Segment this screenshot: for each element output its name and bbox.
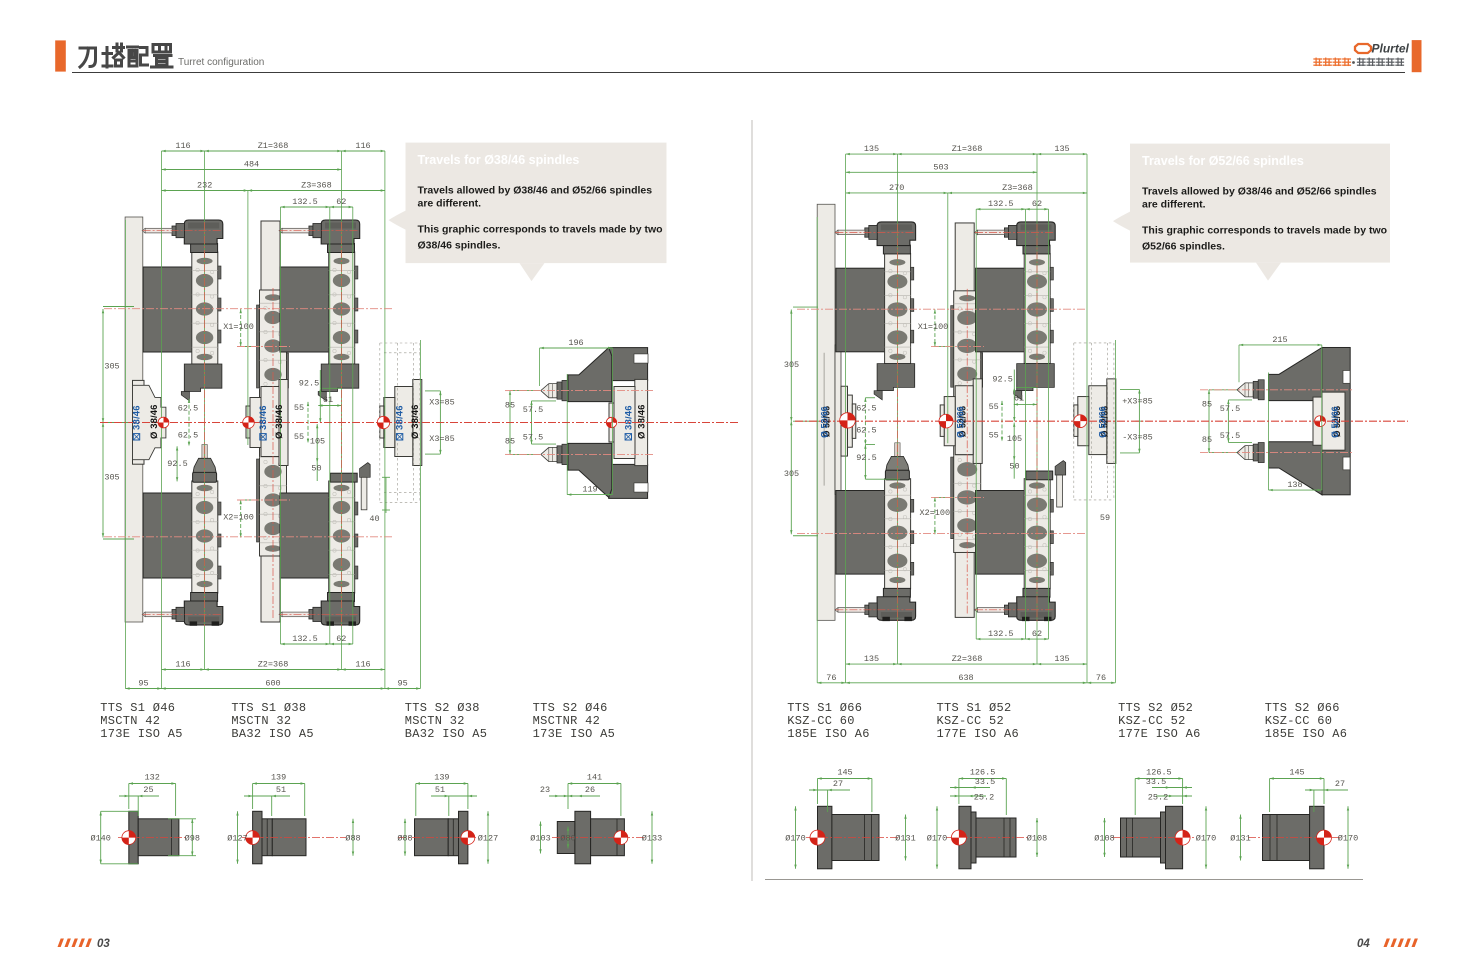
- svg-text:50: 50: [1009, 461, 1019, 471]
- svg-text:173E ISO A5: 173E ISO A5: [533, 727, 616, 741]
- svg-text:are different.: are different.: [418, 198, 482, 210]
- svg-text:173E ISO A5: 173E ISO A5: [100, 727, 183, 741]
- svg-text:TTS S1 Ø38: TTS S1 Ø38: [231, 701, 306, 715]
- svg-text:105: 105: [1007, 434, 1022, 444]
- svg-text:Ø131: Ø131: [1230, 833, 1250, 843]
- svg-text:TTS S2 Ø46: TTS S2 Ø46: [533, 701, 608, 715]
- svg-text:305: 305: [104, 362, 119, 372]
- svg-text:+X3=85: +X3=85: [1122, 397, 1153, 407]
- svg-text:Ø88: Ø88: [397, 833, 412, 843]
- svg-text:are different.: are different.: [1142, 199, 1206, 211]
- svg-text:51: 51: [435, 785, 445, 795]
- svg-text:Travels for Ø38/46 spindles: Travels for Ø38/46 spindles: [418, 153, 580, 167]
- svg-text:85: 85: [1202, 399, 1212, 409]
- svg-text:138: 138: [1287, 480, 1302, 490]
- svg-text:305: 305: [104, 473, 119, 483]
- svg-text:215: 215: [1272, 335, 1287, 345]
- svg-text:62.5: 62.5: [178, 404, 198, 414]
- svg-text:X3=85: X3=85: [429, 398, 455, 408]
- svg-text:Ø88: Ø88: [345, 833, 360, 843]
- svg-text:92.5: 92.5: [856, 453, 876, 463]
- svg-text:X3=85: X3=85: [429, 434, 455, 444]
- svg-text:MSCTN 32: MSCTN 32: [231, 714, 291, 728]
- svg-text:BA32 ISO A5: BA32 ISO A5: [231, 727, 314, 741]
- svg-text:135: 135: [1054, 144, 1069, 154]
- svg-text:Ø 38/46: Ø 38/46: [636, 404, 647, 439]
- svg-text:26: 26: [585, 785, 595, 795]
- svg-text:51: 51: [276, 785, 286, 795]
- svg-text:270: 270: [889, 183, 904, 193]
- svg-text:38/46: 38/46: [258, 405, 269, 430]
- svg-text:92.5: 92.5: [299, 379, 319, 389]
- svg-text:Z2=368: Z2=368: [258, 660, 289, 670]
- svg-text:503: 503: [933, 162, 948, 172]
- svg-text:50: 50: [311, 464, 321, 474]
- svg-text:X1=100: X1=100: [223, 322, 254, 332]
- svg-text:Z1=368: Z1=368: [258, 141, 289, 151]
- svg-text:55: 55: [989, 430, 999, 440]
- svg-text:Ø170: Ø170: [785, 833, 805, 843]
- svg-text:135: 135: [864, 654, 879, 664]
- svg-text:55: 55: [294, 432, 304, 442]
- svg-text:177E ISO A6: 177E ISO A6: [937, 727, 1020, 741]
- svg-text:Z1=368: Z1=368: [952, 144, 983, 154]
- svg-text:This graphic corresponds to tr: This graphic corresponds to travels made…: [418, 224, 663, 236]
- svg-text:KSZ-CC 60: KSZ-CC 60: [787, 714, 855, 728]
- svg-text:Z3=368: Z3=368: [301, 181, 332, 191]
- svg-text:92.5: 92.5: [992, 374, 1012, 384]
- svg-text:25: 25: [143, 785, 153, 795]
- svg-text:Ø52/66 spindles.: Ø52/66 spindles.: [1142, 241, 1225, 253]
- svg-text:Plurtel: Plurtel: [1372, 42, 1410, 56]
- svg-text:Ø131: Ø131: [895, 833, 915, 843]
- svg-text:25.2: 25.2: [974, 793, 994, 803]
- svg-text:Ø 38/46: Ø 38/46: [149, 404, 160, 439]
- svg-text:177E ISO A6: 177E ISO A6: [1118, 727, 1201, 741]
- svg-text:61: 61: [323, 395, 333, 405]
- svg-text:Ø108: Ø108: [1094, 833, 1114, 843]
- svg-text:600: 600: [265, 679, 280, 689]
- svg-text:55: 55: [294, 403, 304, 413]
- svg-text:MSCTN 42: MSCTN 42: [100, 714, 160, 728]
- svg-text:57.5: 57.5: [523, 405, 543, 415]
- svg-text:X2=100: X2=100: [920, 508, 951, 518]
- svg-text:33.5: 33.5: [1146, 777, 1166, 787]
- svg-text:92.5: 92.5: [167, 459, 187, 469]
- svg-text:38/46: 38/46: [395, 405, 406, 430]
- svg-text:132.5: 132.5: [988, 629, 1013, 639]
- svg-text:38/46: 38/46: [132, 405, 143, 430]
- svg-text:X1=100: X1=100: [918, 322, 949, 332]
- svg-text:116: 116: [355, 141, 370, 151]
- svg-text:76: 76: [826, 673, 836, 683]
- svg-text:MSCTNR 42: MSCTNR 42: [533, 714, 601, 728]
- svg-text:Ø 38/46: Ø 38/46: [410, 404, 421, 439]
- svg-text:638: 638: [958, 673, 973, 683]
- svg-text:40: 40: [369, 514, 379, 524]
- svg-text:139: 139: [434, 773, 449, 783]
- svg-text:This graphic corresponds to tr: This graphic corresponds to travels made…: [1142, 225, 1387, 237]
- svg-text:KSZ-CC 52: KSZ-CC 52: [1118, 714, 1186, 728]
- svg-text:85: 85: [1202, 435, 1212, 445]
- svg-text:62: 62: [1032, 199, 1042, 209]
- svg-text:135: 135: [1054, 654, 1069, 664]
- svg-text:Ø 52/66: Ø 52/66: [955, 406, 965, 437]
- svg-text:TTS S2 Ø52: TTS S2 Ø52: [1118, 701, 1193, 715]
- svg-text:23: 23: [540, 785, 550, 795]
- svg-text:TTS S1 Ø52: TTS S1 Ø52: [937, 701, 1012, 715]
- svg-text:04: 04: [1357, 938, 1370, 950]
- svg-text:X2=100: X2=100: [223, 513, 254, 523]
- svg-text:57.5: 57.5: [1220, 404, 1240, 414]
- svg-text:57.5: 57.5: [523, 433, 543, 443]
- svg-text:Ø 52/66: Ø 52/66: [1097, 406, 1107, 437]
- svg-text:119: 119: [582, 485, 597, 495]
- svg-text:62.5: 62.5: [178, 431, 198, 441]
- svg-text:Turret configuration: Turret configuration: [178, 57, 264, 68]
- svg-text:Travels allowed by Ø38/46 and: Travels allowed by Ø38/46 and Ø52/66 spi…: [418, 185, 653, 197]
- svg-text:KSZ-CC 60: KSZ-CC 60: [1265, 714, 1333, 728]
- svg-text:Travels allowed by Ø38/46 and: Travels allowed by Ø38/46 and Ø52/66 spi…: [1142, 186, 1377, 198]
- svg-text:484: 484: [244, 160, 259, 170]
- svg-text:BA32 ISO A5: BA32 ISO A5: [405, 727, 488, 741]
- svg-text:85: 85: [505, 401, 515, 411]
- svg-text:132: 132: [145, 773, 160, 783]
- svg-text:62: 62: [336, 634, 346, 644]
- svg-text:85: 85: [505, 437, 515, 447]
- svg-text:305: 305: [784, 360, 799, 370]
- svg-text:305: 305: [784, 469, 799, 479]
- svg-text:76: 76: [1096, 673, 1106, 683]
- svg-text:Ø140: Ø140: [90, 833, 110, 843]
- svg-text:Z2=368: Z2=368: [952, 654, 983, 664]
- svg-text:139: 139: [271, 773, 286, 783]
- svg-text:Ø108: Ø108: [1027, 833, 1047, 843]
- svg-text:145: 145: [837, 768, 852, 778]
- svg-text:132.5: 132.5: [988, 199, 1013, 209]
- svg-text:Ø 52/66: Ø 52/66: [819, 406, 829, 437]
- svg-text:95: 95: [397, 679, 407, 689]
- svg-text:62.5: 62.5: [856, 403, 876, 413]
- svg-text:135: 135: [864, 144, 879, 154]
- svg-text:Ø 38/46: Ø 38/46: [274, 404, 285, 439]
- svg-text:Ø133: Ø133: [642, 833, 662, 843]
- svg-text:33.5: 33.5: [975, 777, 995, 787]
- svg-text:185E ISO A6: 185E ISO A6: [1265, 727, 1348, 741]
- svg-text:145: 145: [1289, 768, 1304, 778]
- svg-text:62: 62: [336, 197, 346, 207]
- svg-text:55: 55: [989, 402, 999, 412]
- svg-text:Ø98: Ø98: [185, 833, 200, 843]
- svg-text:TTS S1 Ø66: TTS S1 Ø66: [787, 701, 862, 715]
- svg-text:126.5: 126.5: [970, 768, 996, 778]
- svg-text:Ø103: Ø103: [530, 833, 550, 843]
- svg-text:132.5: 132.5: [292, 634, 318, 644]
- svg-text:27: 27: [1335, 779, 1345, 789]
- svg-text:Ø 52/66: Ø 52/66: [1330, 406, 1340, 437]
- svg-text:126.5: 126.5: [1146, 768, 1172, 778]
- svg-text:Ø80: Ø80: [560, 833, 575, 843]
- svg-text:-X3=85: -X3=85: [1122, 432, 1153, 442]
- svg-text:TTS S2 Ø38: TTS S2 Ø38: [405, 701, 480, 715]
- svg-text:Z3=368: Z3=368: [1002, 183, 1033, 193]
- svg-text:Travels for Ø52/66 spindles: Travels for Ø52/66 spindles: [1142, 154, 1304, 168]
- svg-text:Ø170: Ø170: [927, 833, 947, 843]
- svg-text:62: 62: [1032, 629, 1042, 639]
- svg-text:141: 141: [587, 773, 602, 783]
- svg-text:232: 232: [197, 181, 212, 191]
- svg-text:Ø127: Ø127: [227, 833, 247, 843]
- svg-text:116: 116: [175, 141, 190, 151]
- svg-text:Ø170: Ø170: [1196, 833, 1216, 843]
- svg-text:116: 116: [355, 660, 370, 670]
- svg-text:03: 03: [97, 938, 110, 950]
- svg-text:TTS S1 Ø46: TTS S1 Ø46: [100, 701, 175, 715]
- svg-text:57.5: 57.5: [1220, 431, 1240, 441]
- svg-text:MSCTN 32: MSCTN 32: [405, 714, 465, 728]
- svg-text:38/46: 38/46: [623, 405, 634, 430]
- svg-text:KSZ-CC 52: KSZ-CC 52: [937, 714, 1005, 728]
- svg-text:Ø170: Ø170: [1338, 833, 1358, 843]
- svg-text:95: 95: [138, 679, 148, 689]
- svg-text:116: 116: [175, 660, 190, 670]
- svg-text:62.5: 62.5: [856, 426, 876, 436]
- svg-text:Ø38/46 spindles.: Ø38/46 spindles.: [418, 240, 501, 252]
- svg-text:27: 27: [833, 779, 843, 789]
- svg-text:Ø127: Ø127: [478, 833, 498, 843]
- svg-text:TTS S2 Ø66: TTS S2 Ø66: [1265, 701, 1340, 715]
- svg-text:185E ISO A6: 185E ISO A6: [787, 727, 870, 741]
- svg-text:25.2: 25.2: [1148, 793, 1168, 803]
- svg-text:105: 105: [310, 437, 325, 447]
- svg-text:61: 61: [1014, 394, 1024, 404]
- svg-text:196: 196: [568, 338, 583, 348]
- svg-text:59: 59: [1100, 513, 1110, 523]
- svg-text:132.5: 132.5: [292, 197, 318, 207]
